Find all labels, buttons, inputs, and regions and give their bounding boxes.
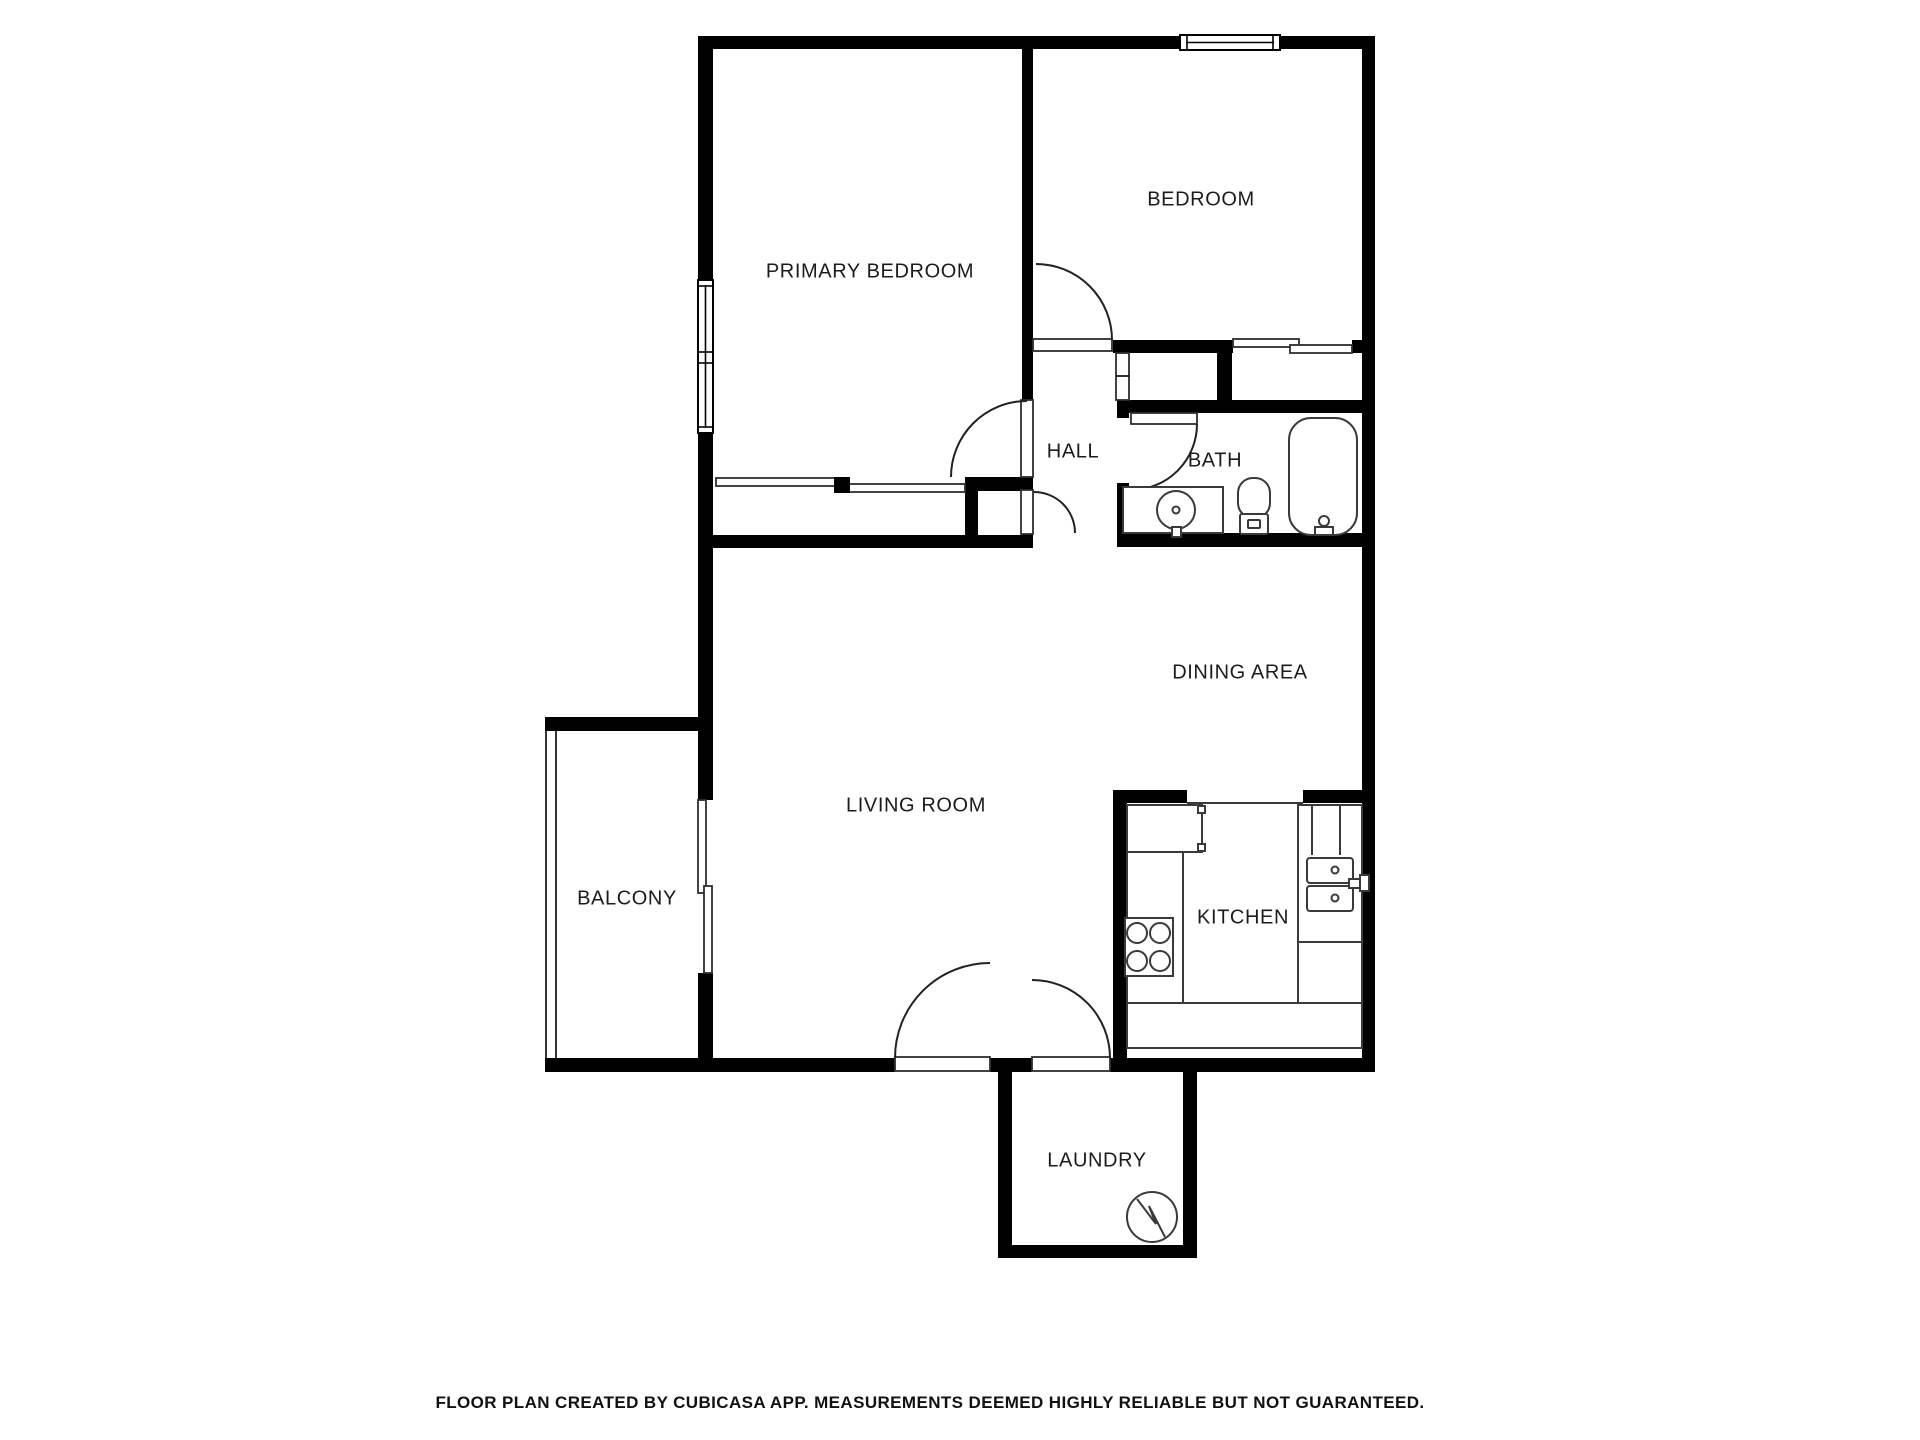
wall-segment (1110, 1058, 1375, 1072)
bathtub-faucet-icon (1315, 527, 1333, 535)
bath-sink-drain-icon (1172, 527, 1181, 537)
door-arc-icon (1036, 264, 1112, 340)
laundry-fixtures (1127, 1192, 1177, 1242)
wall-segment (545, 717, 698, 731)
wall-segment (1117, 400, 1362, 413)
bath-sink-faucet-icon (1173, 507, 1180, 514)
wall-segment (545, 1058, 895, 1072)
window-icon (1180, 35, 1280, 50)
door-arc-icon (895, 963, 990, 1058)
wall-segment (1113, 340, 1233, 353)
wall-segment (1113, 790, 1187, 803)
room-label-laundry: LAUNDRY (1047, 1150, 1146, 1173)
kitchen-counter-icon (1127, 1003, 1362, 1048)
room-label-bath: BATH (1188, 450, 1242, 473)
balcony-railing (546, 731, 556, 1058)
wall-segment (1183, 1072, 1197, 1258)
stove-icon (1125, 918, 1173, 976)
door-living-room-entry (895, 963, 990, 1071)
floor-plan-canvas: PRIMARY BEDROOM BEDROOM HALL BATH DINING… (0, 0, 1920, 1440)
room-label-kitchen: KITCHEN (1197, 907, 1289, 930)
wall-segment (698, 433, 713, 800)
wall-segment (1352, 340, 1362, 353)
wall-segment (713, 535, 1033, 548)
bath-fixtures (1123, 418, 1357, 537)
door-primary-bedroom (951, 400, 1033, 477)
toilet-button-icon (1248, 520, 1260, 528)
room-label-hall: HALL (1047, 441, 1099, 464)
sliding-balcony-door-icon (698, 800, 712, 973)
door-arc-icon (951, 401, 1027, 477)
walls (545, 36, 1375, 1258)
room-label-primary-bedroom: PRIMARY BEDROOM (766, 261, 974, 284)
door-leaf (895, 1057, 990, 1071)
door-arc-icon (1034, 492, 1075, 533)
door-leaf (1131, 413, 1197, 424)
door-leaf (1021, 490, 1033, 534)
refrigerator-icon (1127, 805, 1202, 852)
footer-disclaimer: FLOOR PLAN CREATED BY CUBICASA APP. MEAS… (435, 1393, 1424, 1413)
door-leaf (1032, 1057, 1110, 1071)
sliding-closet-door-icon (716, 477, 965, 493)
floor-plan-drawing (0, 0, 1920, 1440)
window-icon (698, 280, 713, 433)
door-bedroom (1033, 264, 1112, 351)
door-laundry (1032, 980, 1110, 1071)
door-leaf (1033, 339, 1112, 351)
room-label-living-room: LIVING ROOM (846, 795, 986, 818)
kitchen-faucet-icon (1360, 875, 1369, 891)
fridge-handle-icon (1198, 844, 1205, 851)
wall-segment (990, 1058, 1032, 1072)
wall-segment (1362, 36, 1375, 1072)
cased-opening-icon (1116, 353, 1129, 400)
wall-segment (998, 1245, 1197, 1258)
room-label-dining-area: DINING AREA (1172, 662, 1308, 685)
door-hall-closet (1021, 490, 1075, 534)
room-label-bedroom: BEDROOM (1147, 189, 1255, 212)
toilet-icon (1238, 478, 1270, 518)
sliding-closet-door-icon (1233, 339, 1352, 353)
wall-segment (698, 36, 1180, 49)
kitchen-sink-icon (1307, 858, 1353, 883)
kitchen-sink-icon (1307, 886, 1353, 911)
wall-segment (698, 49, 713, 280)
wall-segment (1117, 400, 1129, 418)
wall-segment (1022, 49, 1033, 400)
wall-segment (998, 1072, 1012, 1258)
water-heater-icon (1127, 1192, 1177, 1242)
wall-segment (1280, 36, 1375, 49)
room-label-balcony: BALCONY (577, 888, 677, 911)
fridge-handle-icon (1198, 806, 1205, 813)
bathtub-faucet-icon (1319, 516, 1329, 526)
door-arc-icon (1032, 980, 1110, 1058)
wall-segment (698, 973, 713, 1058)
wall-segment (1303, 790, 1362, 803)
door-leaf (1021, 400, 1033, 477)
